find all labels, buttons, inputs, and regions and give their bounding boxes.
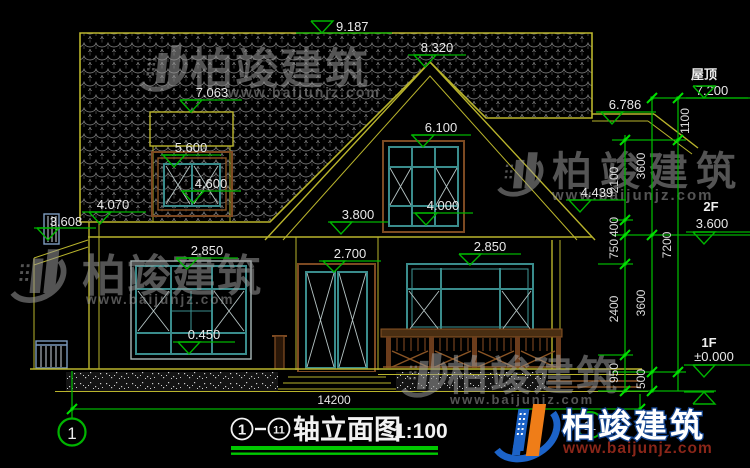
overall-dim-text: 14200 [317,393,351,407]
cad-elevation-drawing: 柏竣建筑 www.baijunjz.com 柏竣建筑 www.baijunjz.… [0,0,750,468]
svg-text:2.850: 2.850 [191,243,224,258]
right-dimension-column: 2100 400 750 2400 950 3600 3600 500 1100… [598,67,750,404]
watermark-url: www.baijunjz.com [449,392,594,407]
svg-text:2.850: 2.850 [474,239,507,254]
brand-logo-url: www.baijunjz.com [562,440,713,457]
svg-text:2.700: 2.700 [334,246,367,261]
svg-text:屋顶: 屋顶 [691,67,717,82]
svg-text:7200: 7200 [660,231,674,258]
svg-text:2F: 2F [703,199,718,214]
svg-text:6.100: 6.100 [425,120,458,135]
level-right-eave: 6.786 [596,97,656,124]
drawing-canvas: 柏竣建筑 www.baijunjz.com 柏竣建筑 www.baijunjz.… [0,0,750,468]
svg-text:4.070: 4.070 [97,197,130,212]
title-underline-2 [231,453,438,455]
brand-logo-icon [497,404,557,459]
svg-text:400: 400 [607,217,621,237]
svg-text:4.000: 4.000 [427,198,460,213]
right-window [407,264,533,332]
svg-text:3600: 3600 [634,152,648,179]
brand-logo-text: 柏竣建筑 [562,407,706,444]
level-ridge: 9.187 [296,19,392,34]
svg-text:8.320: 8.320 [421,40,454,55]
level-door-top: 2.700 [319,246,381,272]
svg-text:950: 950 [607,363,621,383]
watermark-url: www.baijunjz.com [551,187,713,204]
floor-level-below-grade [684,392,715,404]
svg-text:0.450: 0.450 [188,327,221,342]
svg-text:750: 750 [607,239,621,259]
svg-text:3600: 3600 [634,289,648,316]
floor-level-1f: 1F ±0.000 [684,335,750,377]
svg-text:7.063: 7.063 [196,85,229,100]
title-scale: 1:100 [394,420,448,443]
watermark-url: www.baijunjz.com [85,292,235,307]
svg-text:1100: 1100 [678,108,692,134]
svg-text:9.187: 9.187 [336,19,369,34]
axis-bubble-left: 1 [59,419,86,446]
level-second-floor: 3.800 [328,207,388,234]
svg-text:3.600: 3.600 [696,216,729,231]
svg-text:4.600: 4.600 [195,176,228,191]
svg-text:2100: 2100 [607,166,621,193]
title-text: 轴立面图 [293,414,401,445]
svg-text:±0.000: ±0.000 [694,349,734,364]
left-canopy [34,214,88,369]
svg-text:500: 500 [634,369,648,389]
left-railing [36,341,67,368]
entrance-door [298,264,375,372]
drawing-title: 1 11 轴立面图 1:100 [231,414,448,455]
title-axis-from: 1 [238,422,246,439]
level-window-sill: 0.450 [173,327,235,354]
svg-text:3.608: 3.608 [50,214,83,229]
title-axis-to: 11 [273,425,285,437]
level-gable-window-top: 6.100 [411,120,471,147]
watermark-bottom: 柏竣建筑 www.baijunjz.com [403,353,619,407]
svg-text:5.600: 5.600 [175,140,208,155]
watermark-url: www.baijunjz.com [227,84,381,100]
svg-text:6.786: 6.786 [609,97,642,112]
level-right-window-top: 2.850 [459,239,521,265]
floor-level-roof: 屋顶 7.200 [686,67,750,98]
brand-logo: 柏竣建筑 www.baijunjz.com [497,404,713,459]
gable-window [383,141,464,232]
floor-level-2f: 2F 3.600 [686,199,750,244]
svg-text:3.800: 3.800 [342,207,375,222]
svg-text:1: 1 [67,424,76,443]
svg-text:2400: 2400 [607,295,621,322]
porch-post [272,336,287,369]
svg-text:7.200: 7.200 [696,83,729,98]
title-underline [231,446,438,450]
svg-text:1F: 1F [701,335,716,350]
